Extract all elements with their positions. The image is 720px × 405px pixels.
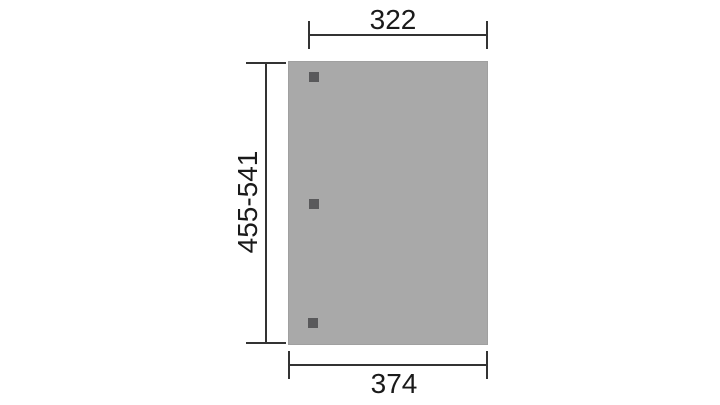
post-marker-middle (309, 199, 319, 209)
dimension-tick-bottom-right (486, 351, 488, 379)
post-marker-bottom (308, 318, 318, 328)
dimension-tick-left-bottom (246, 342, 286, 344)
post-marker-top (309, 72, 319, 82)
dimension-tick-left-top (246, 62, 286, 64)
drawing-canvas: 322 455-541 374 (0, 0, 720, 405)
dimension-label-bottom: 374 (371, 370, 418, 398)
dimension-line-bottom (289, 364, 487, 366)
dimension-tick-bottom-left (288, 351, 290, 379)
dimension-tick-top-left (308, 21, 310, 49)
dimension-line-left (265, 63, 267, 343)
dimension-label-top: 322 (370, 6, 417, 34)
dimension-label-left: 455-541 (234, 151, 262, 254)
dimension-tick-top-right (486, 21, 488, 49)
